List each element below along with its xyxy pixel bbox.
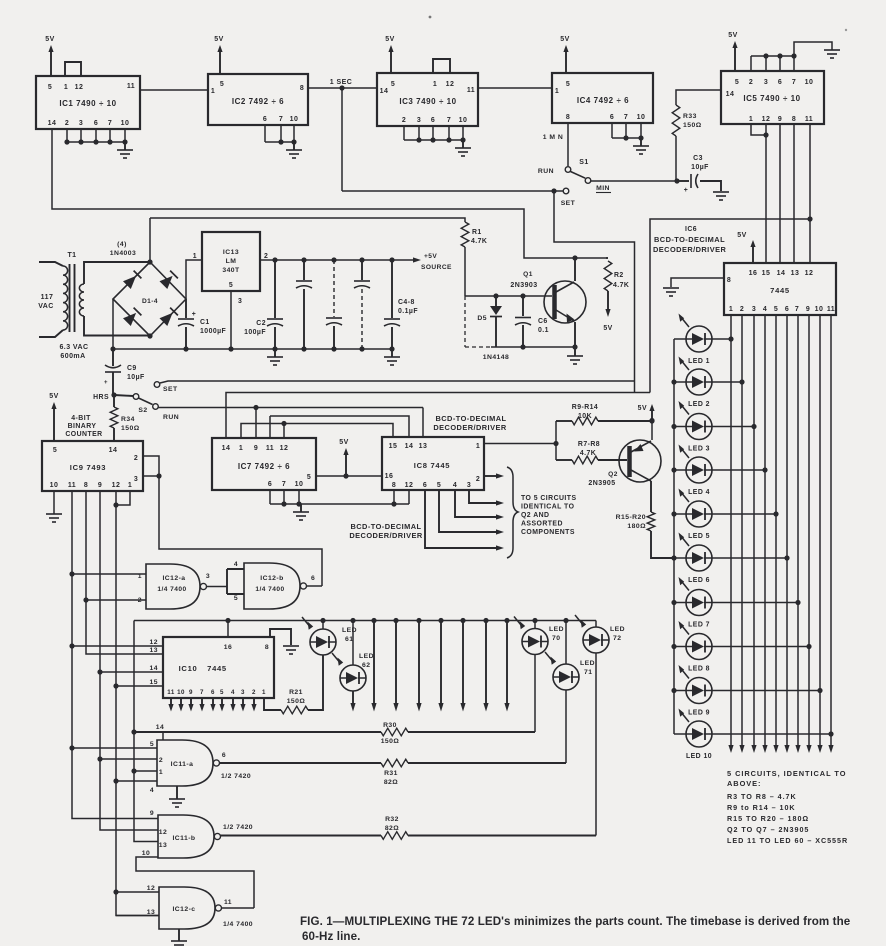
svg-text:1: 1 <box>555 88 559 95</box>
svg-text:5: 5 <box>150 741 154 748</box>
svg-text:12: 12 <box>405 482 414 489</box>
svg-text:C4-8: C4-8 <box>398 299 415 306</box>
svg-text:60-Hz line.: 60-Hz line. <box>302 930 360 943</box>
svg-text:2: 2 <box>252 689 256 696</box>
svg-text:11: 11 <box>127 83 135 90</box>
svg-text:LED: LED <box>549 626 564 633</box>
svg-text:6: 6 <box>311 575 315 582</box>
svg-text:DECODER/DRIVER: DECODER/DRIVER <box>433 423 506 432</box>
svg-text:5V: 5V <box>385 36 394 43</box>
svg-text:2: 2 <box>134 455 138 462</box>
svg-text:IC8 7445: IC8 7445 <box>414 461 450 470</box>
svg-text:15: 15 <box>389 443 398 450</box>
svg-text:BCD-TO-DECIMAL: BCD-TO-DECIMAL <box>435 414 506 423</box>
svg-text:12: 12 <box>762 116 771 123</box>
svg-text:12: 12 <box>805 270 814 277</box>
svg-text:14: 14 <box>405 443 414 450</box>
svg-text:R9-R14: R9-R14 <box>572 404 598 411</box>
svg-text:1: 1 <box>239 445 243 452</box>
svg-text:LED 11 TO LED 60 – XC555R: LED 11 TO LED 60 – XC555R <box>727 836 848 845</box>
svg-text:IC9 7493: IC9 7493 <box>70 463 106 472</box>
svg-text:1 SEC: 1 SEC <box>330 79 352 86</box>
svg-text:10: 10 <box>142 850 150 857</box>
svg-text:9: 9 <box>806 306 810 313</box>
svg-text:IC12-c: IC12-c <box>172 906 195 913</box>
svg-text:LED 1: LED 1 <box>688 358 710 365</box>
svg-text:R1: R1 <box>472 229 482 236</box>
svg-text:14: 14 <box>726 91 735 98</box>
svg-text:R7-R8: R7-R8 <box>578 441 600 448</box>
svg-text:5V: 5V <box>214 36 223 43</box>
svg-text:IC11-a: IC11-a <box>171 761 194 768</box>
svg-text:1: 1 <box>476 443 480 450</box>
svg-text:Q2 TO Q7 – 2N3905: Q2 TO Q7 – 2N3905 <box>727 825 809 834</box>
svg-text:3: 3 <box>417 117 421 124</box>
svg-text:62: 62 <box>362 662 370 669</box>
svg-text:2N3905: 2N3905 <box>588 480 615 487</box>
svg-text:HRS: HRS <box>93 394 109 401</box>
svg-text:DECODER/DRIVER: DECODER/DRIVER <box>653 245 726 254</box>
svg-text:LED: LED <box>342 627 357 634</box>
svg-text:12: 12 <box>446 81 455 88</box>
svg-text:6: 6 <box>431 117 435 124</box>
svg-text:180Ω: 180Ω <box>627 523 646 530</box>
svg-text:TO 5 CIRCUITS: TO 5 CIRCUITS <box>521 495 577 502</box>
svg-text:2N3903: 2N3903 <box>510 282 537 289</box>
svg-text:2: 2 <box>402 117 406 124</box>
svg-text:7: 7 <box>792 79 796 86</box>
svg-text:11: 11 <box>805 116 813 123</box>
svg-text:4: 4 <box>453 482 457 489</box>
svg-text:13: 13 <box>159 842 167 849</box>
svg-text:1/4 7400: 1/4 7400 <box>255 586 284 593</box>
svg-text:COMPONENTS: COMPONENTS <box>521 529 575 536</box>
svg-text:C6: C6 <box>538 318 548 325</box>
svg-text:4: 4 <box>231 689 235 696</box>
svg-text:150Ω: 150Ω <box>287 698 306 705</box>
svg-text:6: 6 <box>423 482 427 489</box>
svg-text:16: 16 <box>385 473 394 480</box>
svg-text:1: 1 <box>433 81 437 88</box>
svg-text:1: 1 <box>211 88 215 95</box>
svg-text:7445: 7445 <box>770 286 790 295</box>
svg-text:7: 7 <box>200 689 204 696</box>
svg-text:3: 3 <box>238 298 242 305</box>
svg-text:11: 11 <box>68 482 76 489</box>
svg-text:+: + <box>104 380 108 386</box>
svg-text:IC2 7492 ÷ 6: IC2 7492 ÷ 6 <box>232 97 284 106</box>
svg-text:8: 8 <box>727 277 731 284</box>
svg-text:R30: R30 <box>383 722 397 729</box>
svg-text:3: 3 <box>206 573 210 580</box>
svg-text:LED 7: LED 7 <box>688 622 710 629</box>
svg-text:7: 7 <box>447 117 451 124</box>
svg-text:LED 2: LED 2 <box>688 401 710 408</box>
svg-text:5V: 5V <box>339 439 348 446</box>
svg-text:1/4 7400: 1/4 7400 <box>157 586 186 593</box>
svg-text:71: 71 <box>584 669 592 676</box>
svg-text:150Ω: 150Ω <box>683 122 702 129</box>
svg-text:1/2 7420: 1/2 7420 <box>223 824 253 831</box>
svg-text:5V: 5V <box>603 325 612 332</box>
svg-text:3: 3 <box>764 79 768 86</box>
svg-text:72: 72 <box>613 635 621 642</box>
svg-text:S1: S1 <box>579 159 588 166</box>
svg-text:1N4148: 1N4148 <box>483 354 510 361</box>
svg-text:14: 14 <box>109 447 118 454</box>
svg-text:3: 3 <box>134 476 138 483</box>
svg-text:LED 10: LED 10 <box>686 753 712 760</box>
svg-text:LED 6: LED 6 <box>688 577 710 584</box>
svg-text:4: 4 <box>763 306 767 313</box>
svg-text:11: 11 <box>467 87 475 94</box>
svg-text:14: 14 <box>156 724 164 731</box>
svg-text:10: 10 <box>815 306 824 313</box>
svg-text:Q2: Q2 <box>608 471 618 478</box>
svg-text:9: 9 <box>778 116 782 123</box>
svg-text:1: 1 <box>729 306 733 313</box>
svg-text:ABOVE:: ABOVE: <box>727 779 761 788</box>
svg-text:5V: 5V <box>560 36 569 43</box>
svg-text:R32: R32 <box>385 816 399 823</box>
svg-text:LED 8: LED 8 <box>688 666 710 673</box>
svg-text:9: 9 <box>254 445 258 452</box>
svg-text:D5: D5 <box>477 315 487 322</box>
svg-text:1/4 7400: 1/4 7400 <box>223 921 253 928</box>
svg-text:LED 9: LED 9 <box>688 710 710 717</box>
svg-text:16: 16 <box>749 270 758 277</box>
svg-text:10µF: 10µF <box>691 164 709 171</box>
svg-text:11: 11 <box>827 306 835 313</box>
svg-text:LED 4: LED 4 <box>688 489 710 496</box>
svg-text:4: 4 <box>150 787 154 794</box>
svg-text:5: 5 <box>391 81 395 88</box>
svg-text:4.7K: 4.7K <box>613 282 629 289</box>
svg-text:600mA: 600mA <box>60 353 85 360</box>
svg-text:IC5 7490 ÷ 10: IC5 7490 ÷ 10 <box>743 94 800 103</box>
svg-text:1: 1 <box>159 769 163 776</box>
svg-text:IC1 7490 ÷ 10: IC1 7490 ÷ 10 <box>59 99 116 108</box>
svg-text:10: 10 <box>50 482 59 489</box>
svg-text:100µF: 100µF <box>244 329 266 336</box>
svg-text:5V: 5V <box>737 232 746 239</box>
svg-text:6: 6 <box>785 306 789 313</box>
svg-text:R15-R20: R15-R20 <box>616 514 646 521</box>
svg-text:10: 10 <box>177 689 185 696</box>
svg-text:150Ω: 150Ω <box>381 738 400 745</box>
svg-text:D1-4: D1-4 <box>142 298 158 305</box>
svg-text:11: 11 <box>266 445 274 452</box>
svg-text:16: 16 <box>224 644 232 651</box>
svg-text:+: + <box>684 187 688 194</box>
svg-text:R3 TO R8 – 4.7K: R3 TO R8 – 4.7K <box>727 792 797 801</box>
svg-text:IC3 7490 ÷ 10: IC3 7490 ÷ 10 <box>399 97 456 106</box>
svg-text:4.7K: 4.7K <box>471 238 487 245</box>
svg-text:R2: R2 <box>614 272 624 279</box>
svg-text:6: 6 <box>778 79 782 86</box>
svg-text:10: 10 <box>637 114 646 121</box>
svg-text:5V: 5V <box>728 32 737 39</box>
svg-text:10: 10 <box>121 120 130 127</box>
svg-text:82Ω: 82Ω <box>385 825 399 832</box>
svg-text:10: 10 <box>459 117 468 124</box>
svg-text:9: 9 <box>150 810 154 817</box>
svg-text:5: 5 <box>229 282 233 289</box>
svg-text:DECODER/DRIVER: DECODER/DRIVER <box>349 531 422 540</box>
svg-text:S2: S2 <box>138 407 147 414</box>
svg-text:1 M N: 1 M N <box>543 134 563 141</box>
svg-text:Q2 AND: Q2 AND <box>521 512 549 519</box>
svg-text:VAC: VAC <box>38 303 54 310</box>
svg-text:8: 8 <box>300 85 304 92</box>
svg-text:14: 14 <box>222 445 231 452</box>
svg-text:5 CIRCUITS, IDENTICAL TO: 5 CIRCUITS, IDENTICAL TO <box>727 769 846 778</box>
svg-text:Q1: Q1 <box>523 271 533 278</box>
svg-text:12: 12 <box>159 829 167 836</box>
svg-text:BCD-TO-DECIMAL: BCD-TO-DECIMAL <box>654 235 725 244</box>
svg-text:13: 13 <box>419 443 428 450</box>
svg-text:12: 12 <box>112 482 121 489</box>
svg-text:LED: LED <box>610 626 625 633</box>
svg-text:T1: T1 <box>67 252 76 259</box>
svg-text:FIG. 1—MULTIPLEXING THE 72 LED: FIG. 1—MULTIPLEXING THE 72 LED's minimiz… <box>300 915 851 928</box>
svg-text:7: 7 <box>624 114 628 121</box>
svg-text:7: 7 <box>108 120 112 127</box>
svg-text:5: 5 <box>234 595 238 602</box>
svg-text:8: 8 <box>84 482 88 489</box>
svg-text:1000µF: 1000µF <box>200 328 226 335</box>
svg-text:IC4 7492 ÷ 6: IC4 7492 ÷ 6 <box>577 96 629 105</box>
svg-text:5: 5 <box>566 81 570 88</box>
svg-text:3: 3 <box>467 482 471 489</box>
svg-text:LED 5: LED 5 <box>688 533 710 540</box>
svg-text:5V: 5V <box>49 393 58 400</box>
svg-text:2: 2 <box>740 306 744 313</box>
svg-text:2: 2 <box>749 79 753 86</box>
svg-text:14: 14 <box>777 270 786 277</box>
svg-text:10K: 10K <box>578 413 592 420</box>
svg-text:14: 14 <box>380 88 389 95</box>
svg-text:5: 5 <box>48 84 52 91</box>
svg-text:12: 12 <box>75 84 84 91</box>
svg-text:R31: R31 <box>384 770 398 777</box>
svg-text:C9: C9 <box>127 365 137 372</box>
svg-text:7: 7 <box>282 481 286 488</box>
svg-text:8: 8 <box>265 644 269 651</box>
svg-text:12: 12 <box>280 445 289 452</box>
svg-text:RUN: RUN <box>538 168 554 175</box>
svg-text:SET: SET <box>561 200 576 207</box>
svg-text:12: 12 <box>150 639 158 646</box>
svg-text:7445: 7445 <box>207 664 227 673</box>
svg-text:R33: R33 <box>683 113 697 120</box>
svg-text:8: 8 <box>392 482 396 489</box>
svg-text:R9 to R14 – 10K: R9 to R14 – 10K <box>727 803 796 812</box>
svg-text:(4): (4) <box>117 241 127 248</box>
svg-text:BCD-TO-DECIMAL: BCD-TO-DECIMAL <box>350 522 421 531</box>
svg-text:+: + <box>192 311 196 318</box>
svg-text:6: 6 <box>222 752 226 759</box>
svg-text:9: 9 <box>189 689 193 696</box>
svg-text:1/2 7420: 1/2 7420 <box>221 773 251 780</box>
svg-text:70: 70 <box>552 635 560 642</box>
svg-text:RUN: RUN <box>163 414 179 421</box>
svg-text:5V: 5V <box>638 405 647 412</box>
svg-text:1: 1 <box>749 116 753 123</box>
svg-text:BINARY: BINARY <box>68 423 97 430</box>
svg-text:15: 15 <box>150 679 158 686</box>
svg-text:IC13: IC13 <box>223 249 239 256</box>
svg-text:6: 6 <box>268 481 272 488</box>
svg-text:1N4003: 1N4003 <box>110 250 137 257</box>
svg-text:14: 14 <box>48 120 57 127</box>
svg-text:61: 61 <box>345 636 353 643</box>
svg-text:10: 10 <box>290 116 299 123</box>
svg-text:SOURCE: SOURCE <box>421 264 452 271</box>
svg-text:2: 2 <box>159 757 163 764</box>
svg-text:ASSORTED: ASSORTED <box>521 521 563 528</box>
svg-text:2: 2 <box>65 120 69 127</box>
svg-text:4: 4 <box>234 561 238 568</box>
svg-text:6: 6 <box>94 120 98 127</box>
svg-text:1: 1 <box>262 689 266 696</box>
svg-text:LED: LED <box>580 660 595 667</box>
svg-text:4.7K: 4.7K <box>580 450 596 457</box>
svg-text:2: 2 <box>476 476 480 483</box>
svg-text:1: 1 <box>193 253 197 260</box>
svg-text:5: 5 <box>774 306 778 313</box>
svg-text:10: 10 <box>805 79 814 86</box>
svg-text:11: 11 <box>224 899 232 906</box>
svg-text:5: 5 <box>437 482 441 489</box>
svg-text:2: 2 <box>264 253 268 260</box>
svg-text:12: 12 <box>147 885 155 892</box>
svg-text:7: 7 <box>795 306 799 313</box>
svg-text:+5V: +5V <box>424 253 437 260</box>
svg-text:9: 9 <box>98 482 102 489</box>
svg-text:10: 10 <box>295 481 304 488</box>
svg-text:IC7 7492 ÷ 6: IC7 7492 ÷ 6 <box>238 462 290 471</box>
svg-text:3: 3 <box>752 306 756 313</box>
svg-text:R21: R21 <box>289 689 303 696</box>
svg-text:150Ω: 150Ω <box>121 425 140 432</box>
svg-text:10µF: 10µF <box>127 374 145 381</box>
svg-text:LED: LED <box>359 653 374 660</box>
svg-text:82Ω: 82Ω <box>384 779 398 786</box>
svg-text:11: 11 <box>167 689 175 696</box>
svg-text:6: 6 <box>211 689 215 696</box>
svg-text:15: 15 <box>762 270 771 277</box>
svg-text:C2: C2 <box>256 320 266 327</box>
svg-text:14: 14 <box>150 665 158 672</box>
svg-text:COUNTER: COUNTER <box>65 431 102 438</box>
svg-text:R15 TO R20 – 180Ω: R15 TO R20 – 180Ω <box>727 814 809 823</box>
svg-text:IC10: IC10 <box>179 664 198 673</box>
svg-text:1: 1 <box>64 84 68 91</box>
svg-text:1: 1 <box>128 482 132 489</box>
svg-text:0.1µF: 0.1µF <box>398 308 418 315</box>
svg-text:6: 6 <box>610 114 614 121</box>
svg-text:0.1: 0.1 <box>538 327 549 334</box>
svg-text:IDENTICAL TO: IDENTICAL TO <box>521 504 575 511</box>
svg-text:IC11-b: IC11-b <box>172 835 195 842</box>
svg-text:6: 6 <box>263 116 267 123</box>
svg-text:8: 8 <box>566 114 570 121</box>
svg-text:4-BIT: 4-BIT <box>71 415 91 422</box>
svg-text:IC6: IC6 <box>685 226 697 233</box>
svg-text:13: 13 <box>791 270 800 277</box>
svg-text:SET: SET <box>163 386 178 393</box>
svg-text:C1: C1 <box>200 319 210 326</box>
svg-text:5: 5 <box>307 474 311 481</box>
svg-text:IC12-a: IC12-a <box>162 575 185 582</box>
svg-text:6.3 VAC: 6.3 VAC <box>59 344 88 351</box>
svg-text:5: 5 <box>220 689 224 696</box>
svg-text:5: 5 <box>735 79 739 86</box>
svg-text:5: 5 <box>53 447 57 454</box>
svg-text:7: 7 <box>279 116 283 123</box>
svg-text:8: 8 <box>792 116 796 123</box>
svg-text:117: 117 <box>41 294 54 301</box>
svg-text:5: 5 <box>220 81 224 88</box>
svg-text:C3: C3 <box>693 155 703 162</box>
svg-text:13: 13 <box>150 647 158 654</box>
svg-text:LM: LM <box>226 258 237 265</box>
svg-text:LED 3: LED 3 <box>688 446 710 453</box>
svg-text:340T: 340T <box>222 267 240 274</box>
svg-text:3: 3 <box>241 689 245 696</box>
svg-text:MIN: MIN <box>596 185 610 192</box>
svg-text:5V: 5V <box>45 36 54 43</box>
svg-text:IC12-b: IC12-b <box>260 575 283 582</box>
svg-text:R34: R34 <box>121 416 135 423</box>
svg-text:3: 3 <box>79 120 83 127</box>
